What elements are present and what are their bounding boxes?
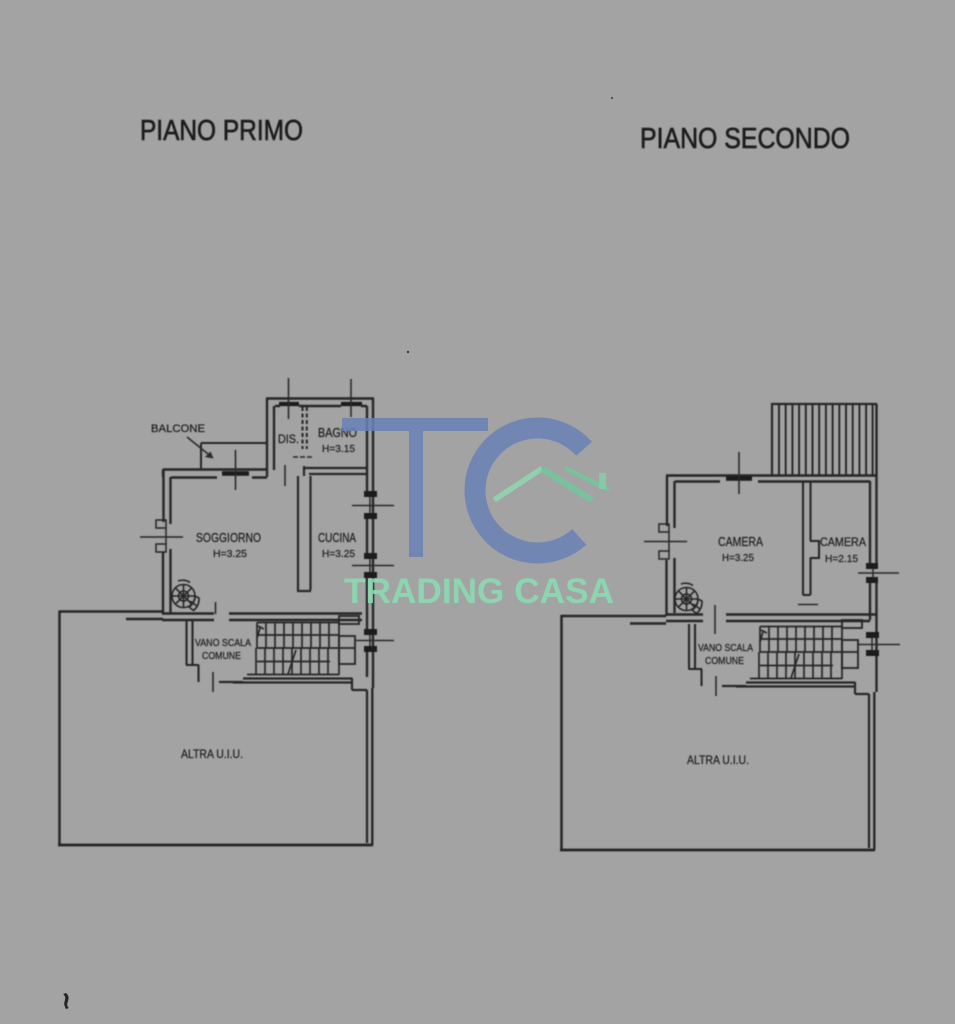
svg-text:VANO SCALA: VANO SCALA	[195, 637, 251, 649]
svg-text:VANO SCALA: VANO SCALA	[698, 642, 753, 654]
svg-text:H=3.25: H=3.25	[322, 548, 355, 560]
svg-text:PIANO PRIMO: PIANO PRIMO	[140, 115, 303, 147]
svg-text:SOGGIORNO: SOGGIORNO	[196, 530, 261, 545]
svg-text:H=3.25: H=3.25	[213, 548, 247, 560]
svg-text:H=3.25: H=3.25	[722, 552, 754, 564]
svg-text:H=3.15: H=3.15	[322, 443, 355, 455]
svg-text:BALCONE: BALCONE	[151, 423, 205, 435]
svg-text:DIS.: DIS.	[278, 434, 299, 446]
svg-text:ALTRA U.I.U.: ALTRA U.I.U.	[687, 753, 749, 767]
svg-text:COMUNE: COMUNE	[202, 650, 241, 662]
svg-text:H=2.15: H=2.15	[825, 553, 858, 565]
svg-text:ALTRA U.I.U.: ALTRA U.I.U.	[181, 747, 243, 761]
svg-text:COMUNE: COMUNE	[705, 655, 744, 667]
svg-text:TRADING CASA: TRADING CASA	[344, 572, 614, 611]
svg-text:CUCINA: CUCINA	[318, 531, 357, 545]
svg-text:PIANO SECONDO: PIANO SECONDO	[640, 123, 850, 155]
svg-text:CAMERA: CAMERA	[718, 535, 764, 549]
svg-text:CAMERA: CAMERA	[820, 537, 866, 549]
